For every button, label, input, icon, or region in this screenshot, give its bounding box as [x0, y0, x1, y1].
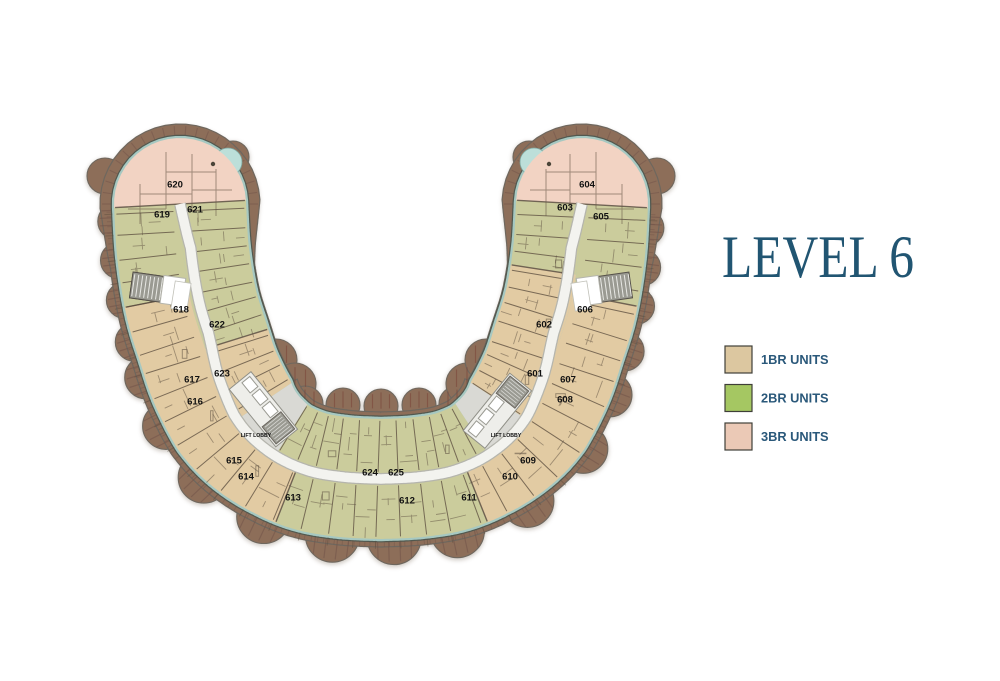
svg-text:606: 606: [577, 304, 593, 315]
svg-text:622: 622: [209, 319, 225, 330]
svg-text:607: 607: [560, 374, 576, 385]
svg-text:601: 601: [527, 368, 544, 379]
svg-text:614: 614: [238, 471, 255, 482]
svg-text:602: 602: [536, 319, 552, 330]
svg-text:605: 605: [593, 211, 610, 222]
svg-text:623: 623: [214, 368, 230, 379]
svg-text:624: 624: [362, 467, 379, 478]
svg-text:609: 609: [520, 455, 536, 466]
svg-text:3BR UNITS: 3BR UNITS: [761, 429, 829, 444]
svg-text:2BR UNITS: 2BR UNITS: [761, 391, 829, 406]
svg-text:LEVEL 6: LEVEL 6: [722, 224, 914, 290]
svg-text:619: 619: [154, 209, 170, 220]
svg-text:615: 615: [226, 455, 243, 466]
svg-text:1BR UNITS: 1BR UNITS: [761, 352, 829, 367]
svg-text:604: 604: [579, 179, 596, 190]
svg-text:LIFT LOBBY: LIFT LOBBY: [241, 433, 272, 439]
svg-text:603: 603: [557, 202, 573, 213]
svg-text:LIFT LOBBY: LIFT LOBBY: [491, 433, 522, 439]
svg-text:612: 612: [399, 495, 415, 506]
svg-text:611: 611: [461, 492, 477, 503]
svg-text:621: 621: [187, 204, 204, 215]
svg-text:610: 610: [502, 471, 518, 482]
svg-text:608: 608: [557, 394, 573, 405]
svg-text:620: 620: [167, 179, 183, 190]
svg-text:625: 625: [388, 467, 405, 478]
svg-text:613: 613: [285, 492, 301, 503]
svg-text:618: 618: [173, 304, 189, 315]
svg-text:617: 617: [184, 374, 200, 385]
svg-text:616: 616: [187, 396, 203, 407]
